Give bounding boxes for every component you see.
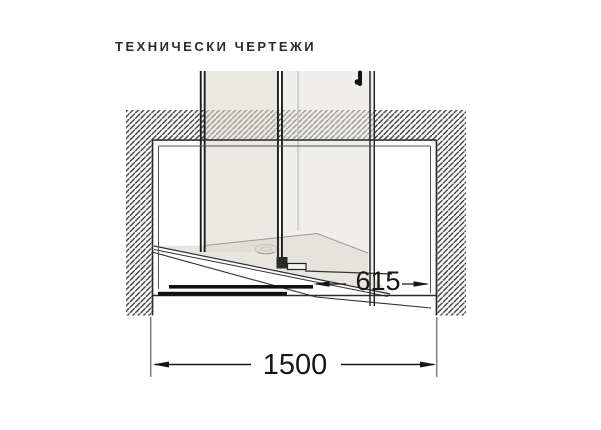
dimension-total-width-label: 1500 xyxy=(263,351,328,380)
glass-edge-line xyxy=(298,71,299,231)
arrow-left-icon xyxy=(153,362,170,368)
sliding-glass-door xyxy=(283,71,375,271)
fixed-glass-panel xyxy=(206,71,278,252)
dimension-entry-width-label: 615 xyxy=(355,268,400,295)
arrow-right-icon xyxy=(420,362,436,368)
technical-drawing-page: ТЕХНИЧЕСКИ ЧЕРТЕЖИ xyxy=(0,0,601,430)
door-bottom-guide xyxy=(288,264,307,270)
glass-panels xyxy=(206,71,375,271)
